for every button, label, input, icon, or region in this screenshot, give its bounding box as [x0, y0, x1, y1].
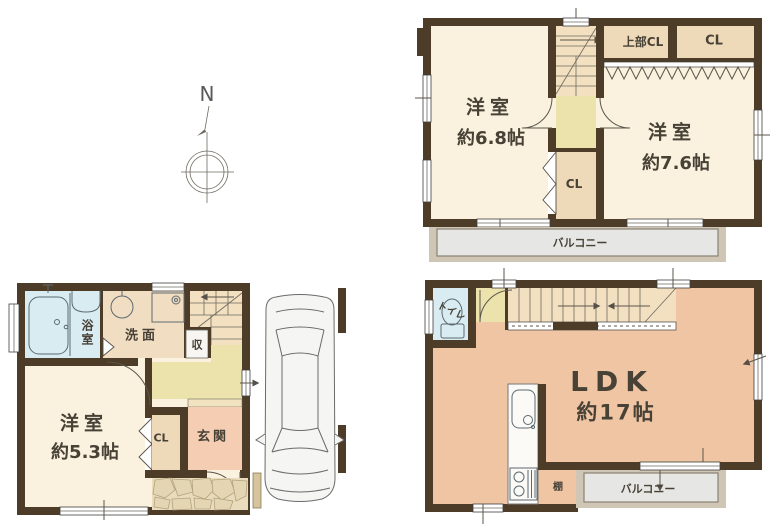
- ldk-shelf-label: 棚: [553, 483, 563, 493]
- compass: [181, 106, 234, 203]
- hall-2f: [556, 96, 596, 148]
- fence-bar: [253, 473, 261, 508]
- floor1-room-name: 洋室: [60, 415, 108, 434]
- floor2-room2-name: 洋室: [648, 124, 696, 143]
- boundary-wall: [338, 425, 346, 473]
- ldk-balcony-label: バルコニー: [621, 484, 676, 495]
- floor2-closet-right-label: CL: [705, 35, 723, 48]
- ldk-room-size: 約17帖: [576, 403, 655, 424]
- washroom-area: [103, 291, 186, 358]
- floor1-room-size: 約5.3帖: [51, 444, 119, 462]
- kitchen-counter: [508, 384, 538, 504]
- floor2-room1-size: 約6.8帖: [457, 130, 525, 148]
- boundary-wall: [338, 288, 346, 333]
- wall-stub: [417, 28, 423, 56]
- floor2-room2-size: 約7.6帖: [642, 155, 710, 173]
- floor1-storage-label: 収: [192, 340, 203, 351]
- ldk-room-name: LDK: [570, 368, 654, 396]
- compass-north-label: N: [200, 84, 215, 104]
- hall-1f: [152, 362, 242, 399]
- floor1-bathroom-label: 浴室: [81, 319, 93, 347]
- compass-arrow: [197, 129, 206, 136]
- floor2-balcony-label: バルコニー: [553, 238, 608, 249]
- floorplan-canvas: N 洋室 約6.8帖 洋室 約7.6帖 上部CL CL CL バルコニー 浴室 …: [0, 0, 781, 525]
- floor1-washroom-label: 洗面: [125, 330, 159, 343]
- floor2-upper-closet-label: 上部CL: [623, 36, 663, 48]
- car-space: [253, 288, 346, 508]
- car-icon: [256, 295, 344, 502]
- floor1-entrance-label: 玄関: [197, 431, 229, 444]
- floor1-closet-label: CL: [153, 433, 168, 444]
- stone-path: [152, 478, 248, 510]
- floor2-closet-mid-label: CL: [566, 178, 582, 190]
- entrance-step: [188, 399, 242, 407]
- floor2-room1-name: 洋室: [466, 99, 514, 118]
- shelf-wall: [538, 462, 578, 470]
- stairs-ldk: [508, 288, 676, 322]
- floor1-plan: [9, 283, 258, 520]
